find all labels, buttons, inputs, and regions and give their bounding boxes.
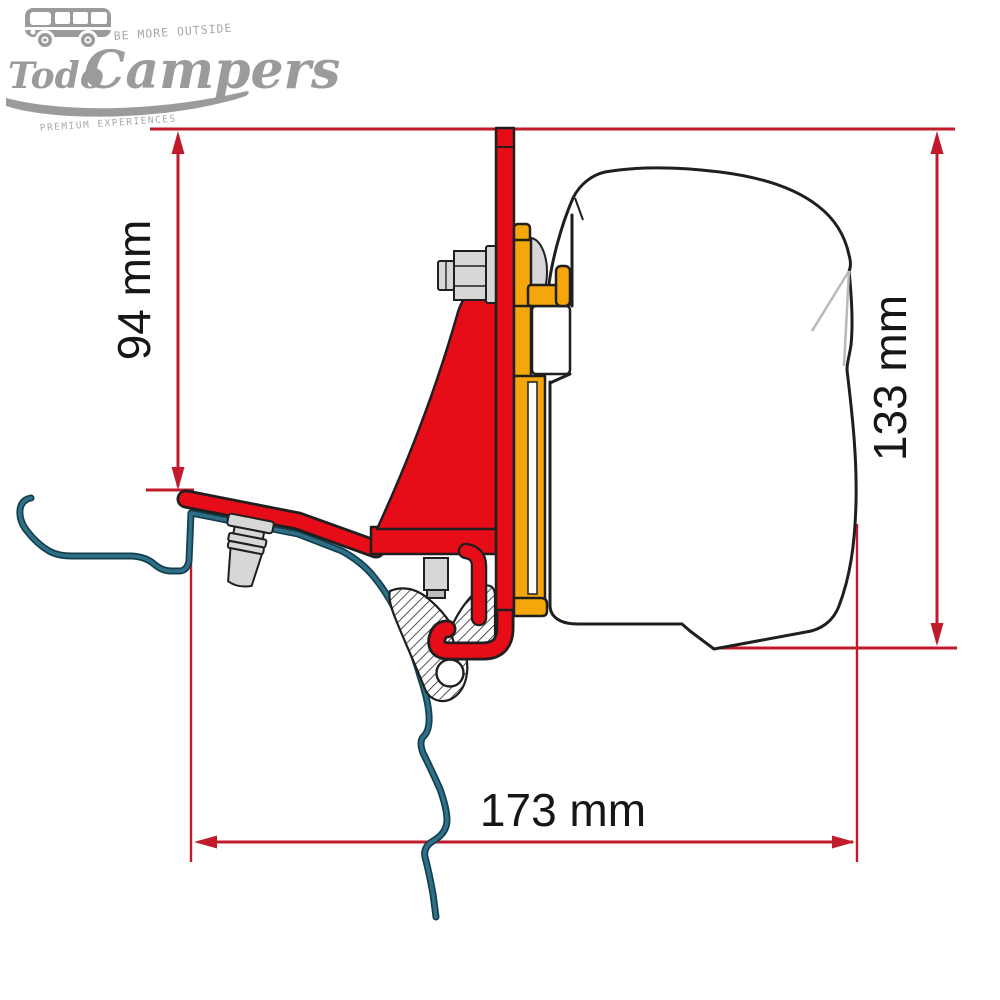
dim-arrow-173mm-left	[194, 836, 217, 849]
logo-wordmark-campers: Campers	[84, 40, 340, 101]
rail-groove	[528, 382, 537, 594]
product-diagram-image: 94 mm 133 mm 173 mm	[0, 0, 1000, 1000]
flange-nut-lip	[427, 590, 445, 598]
awning-adapter-bracket	[186, 292, 505, 651]
dim-arrow-94mm-down	[172, 467, 185, 490]
flange-nut	[424, 558, 448, 590]
rail-foot	[514, 598, 547, 616]
dim-label-173mm: 173 mm	[480, 784, 646, 836]
rail-hook-tab	[556, 266, 570, 306]
fabric-slot-line-1	[812, 271, 849, 331]
case-lid-seam	[575, 198, 583, 220]
dim-arrow-133mm-up	[931, 131, 944, 154]
roof-rivet-cap	[216, 513, 274, 590]
channel-jog	[550, 374, 570, 383]
dim-arrow-133mm-down	[931, 623, 944, 646]
gutter-hook-loop	[437, 660, 464, 687]
dim-arrow-173mm-right	[832, 836, 855, 849]
bolt-hex-nut	[454, 251, 486, 300]
awning-case-outline	[549, 168, 856, 649]
dim-arrow-94mm-up	[172, 131, 185, 154]
dim-label-133mm: 133 mm	[864, 295, 916, 461]
bracket-gusset-triangle	[377, 292, 496, 529]
dim-label-94mm: 94 mm	[108, 220, 160, 361]
awning-mount-channel	[532, 306, 570, 383]
brand-logo: BE MORE OUTSIDE Todo Campers PREMIUM EXP…	[6, 8, 340, 134]
bracket-vertical-plate	[496, 128, 514, 610]
fabric-slot-line-2	[844, 271, 849, 366]
